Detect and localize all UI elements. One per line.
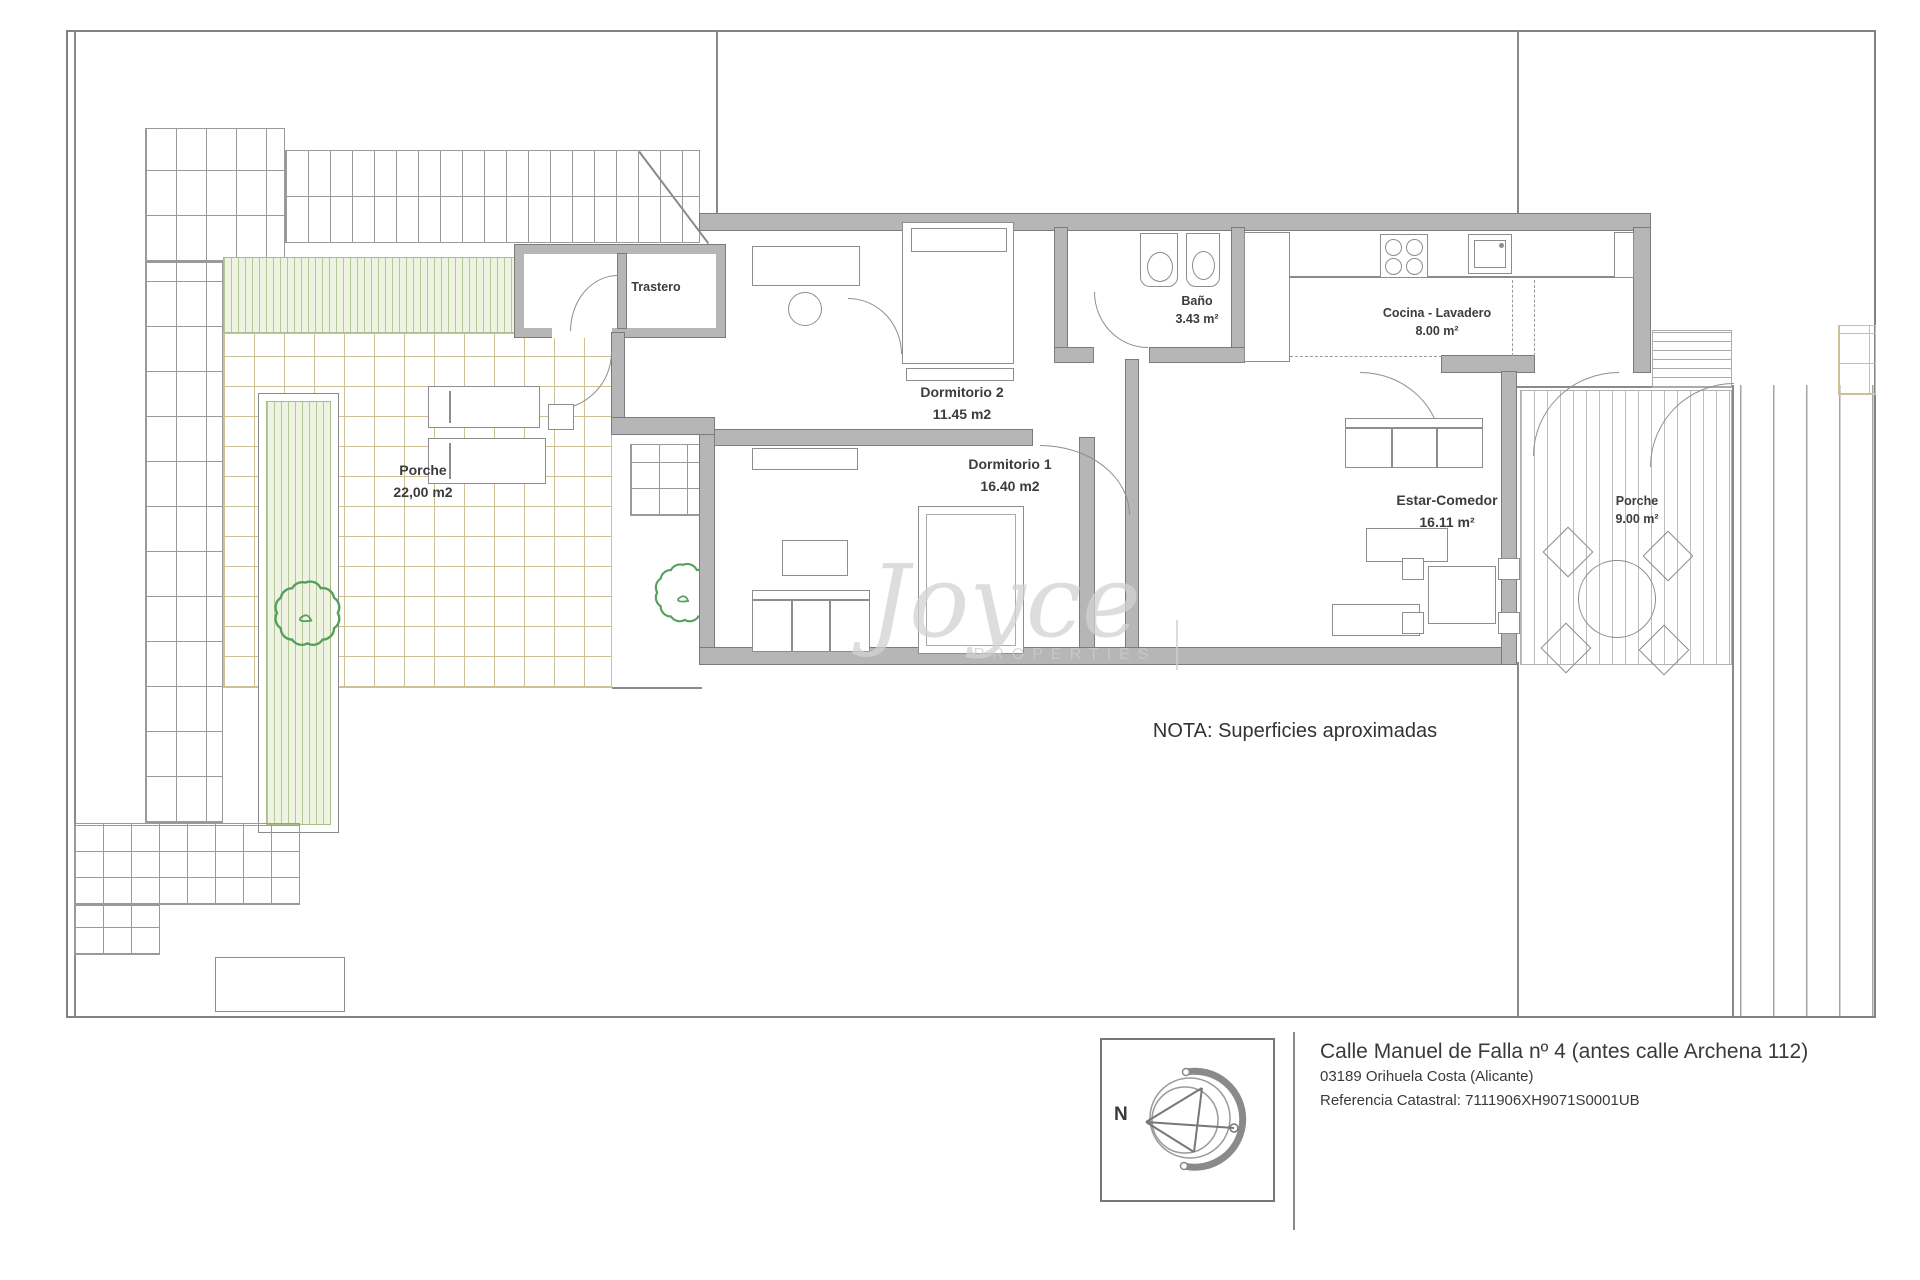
stair-band xyxy=(285,150,700,243)
wall-bath-south-b xyxy=(1150,348,1244,362)
bed-dorm1 xyxy=(918,506,1024,654)
wall-entry-west xyxy=(612,333,624,421)
chair-dorm2 xyxy=(788,292,822,326)
porch-bottom-line xyxy=(612,687,702,689)
room-name: Porche xyxy=(1615,492,1658,510)
hob-burner xyxy=(1385,258,1402,275)
bed-dorm2 xyxy=(902,222,1014,364)
label-dorm1: Dormitorio 1 16.40 m2 xyxy=(968,453,1051,497)
wall-dorm1-west xyxy=(700,430,714,662)
wall-entry-south xyxy=(612,418,714,434)
bench-dorm2 xyxy=(906,368,1014,381)
room-area: 16.40 m2 xyxy=(968,475,1051,497)
table-dorm1 xyxy=(782,540,848,576)
room-name: Dormitorio 1 xyxy=(968,453,1051,475)
dining-chair xyxy=(1498,612,1520,634)
room-name: Cocina - Lavadero xyxy=(1383,304,1491,322)
sink-tap xyxy=(1499,243,1504,248)
boundary-line-right-bottom xyxy=(1517,662,1519,1016)
label-cocina: Cocina - Lavadero 8.00 m² xyxy=(1383,304,1491,340)
room-name: Dormitorio 2 xyxy=(920,381,1003,403)
room-name: Trastero xyxy=(631,280,680,294)
kitchen-counter-line xyxy=(1290,276,1634,278)
room-area: 11.45 m2 xyxy=(920,403,1003,425)
room-area: 22,00 m2 xyxy=(393,481,452,503)
room-area: 8.00 m² xyxy=(1383,322,1491,340)
floorplan-page: Trastero Dormitorio 2 11.45 m2 Baño 3.43… xyxy=(0,0,1920,1280)
address-line-3: Referencia Catastral: 7111906XH9071S0001… xyxy=(1320,1092,1640,1109)
appliance-dash-1 xyxy=(1512,280,1513,356)
hob xyxy=(1380,234,1428,278)
toilet-bowl xyxy=(1147,252,1173,282)
hob-burner xyxy=(1406,239,1423,256)
bench-bottomleft xyxy=(215,957,345,1012)
address-line-1: Calle Manuel de Falla nº 4 (antes calle … xyxy=(1320,1040,1808,1064)
round-table xyxy=(1578,560,1656,638)
room-area: 3.43 m² xyxy=(1175,310,1218,328)
appliance-dash-2 xyxy=(1534,280,1535,356)
room-area: 9.00 m² xyxy=(1615,510,1658,528)
neighbor-steps xyxy=(1652,330,1732,388)
dining-chair xyxy=(1498,558,1520,580)
kitchen-column xyxy=(1244,232,1290,362)
sofa-living xyxy=(1345,418,1483,468)
label-porche-left: Porche 22,00 m2 xyxy=(393,459,452,503)
address-line-2: 03189 Orihuela Costa (Alicante) xyxy=(1320,1068,1533,1085)
wall-kitchen-stub xyxy=(1442,356,1534,372)
label-bano: Baño 3.43 m² xyxy=(1175,292,1218,328)
toilet xyxy=(1140,233,1178,287)
neighbor-deck xyxy=(1740,385,1876,1016)
dining-table xyxy=(1428,566,1496,624)
sofa-cushion-line xyxy=(1436,427,1438,467)
room-name: Baño xyxy=(1175,292,1218,310)
side-table xyxy=(548,404,574,430)
wall-bath-west xyxy=(1055,228,1067,358)
trastero-divider xyxy=(618,254,626,328)
pergola-band xyxy=(223,257,515,333)
hob-burner xyxy=(1385,239,1402,256)
sofa-back-line xyxy=(1346,427,1482,429)
label-dorm2: Dormitorio 2 11.45 m2 xyxy=(920,381,1003,425)
sink xyxy=(1468,234,1512,274)
sofa-back-line xyxy=(753,599,869,601)
compass-north-label: N xyxy=(1114,1104,1128,1126)
room-name: Estar-Comedor xyxy=(1396,489,1497,511)
tiles-bottomleft-a xyxy=(74,823,300,905)
sofa-cushion-line xyxy=(1391,427,1393,467)
wall-bath-south-a xyxy=(1055,348,1093,362)
shelf-dorm1 xyxy=(752,448,858,470)
lounger-head-line xyxy=(449,391,451,423)
tiles-bottomleft-b xyxy=(74,905,160,955)
wall-top xyxy=(700,214,1650,230)
boundary-line-right-top xyxy=(1517,30,1519,215)
label-estar: Estar-Comedor 16.11 m² xyxy=(1396,489,1497,533)
pillow-dorm2 xyxy=(911,228,1007,252)
surfaces-note: NOTA: Superficies aproximadas xyxy=(1153,720,1437,742)
hob-burner xyxy=(1406,258,1423,275)
wall-dorm-divider xyxy=(700,430,1032,445)
sofa-cushion-line xyxy=(829,599,831,651)
coffee-table-living xyxy=(1366,528,1448,562)
room-name: Porche xyxy=(393,459,452,481)
wall-kitchen-west xyxy=(1232,228,1244,358)
kitchen-open-dash xyxy=(1290,356,1442,357)
desk-dorm2 xyxy=(752,246,860,286)
sofa-dorm1 xyxy=(752,590,870,652)
bidet xyxy=(1186,233,1220,287)
label-porche-right: Porche 9.00 m² xyxy=(1615,492,1658,528)
room-area: 16.11 m² xyxy=(1396,511,1497,533)
tree-icon xyxy=(258,575,353,670)
tiles-left-strip xyxy=(145,262,223,823)
bidet-bowl xyxy=(1192,251,1215,280)
wall-kitchen-east xyxy=(1634,228,1650,372)
sofa-cushion-line xyxy=(791,599,793,651)
sun-lounger xyxy=(428,386,540,428)
kitchen-cabinet xyxy=(1614,232,1634,278)
neighbor-divider-line xyxy=(1732,385,1734,1016)
tiles-topleft xyxy=(145,128,285,262)
boundary-line-left-top xyxy=(716,30,718,215)
footer-divider xyxy=(1293,1032,1295,1230)
dining-chair xyxy=(1402,558,1424,580)
dining-chair xyxy=(1402,612,1424,634)
label-trastero: Trastero xyxy=(631,278,680,296)
bed-dorm1-inner xyxy=(926,514,1016,646)
neighbor-tiles xyxy=(1838,325,1876,395)
planter-square xyxy=(630,444,702,516)
compass-box: N xyxy=(1100,1038,1275,1202)
surfaces-note-text: NOTA: Superficies aproximadas xyxy=(1153,720,1437,742)
